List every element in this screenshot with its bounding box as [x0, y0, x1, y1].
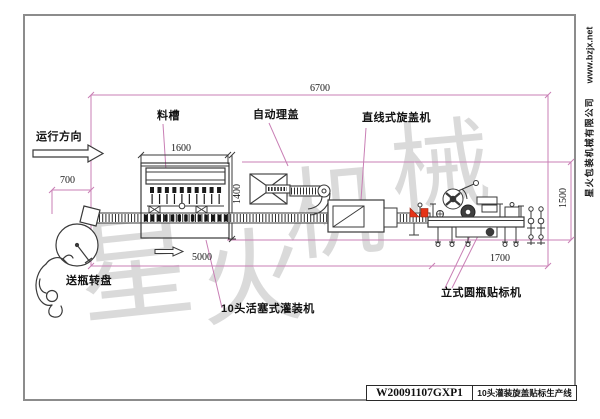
leader-capper [361, 128, 366, 200]
dim-infeed-offset: 700 [60, 176, 75, 186]
label-filler: 10头活塞式灌装机 [221, 304, 315, 315]
cap-track-inner [308, 196, 322, 209]
margin-company-note: 星火包装机械有限公司www.bzjx.net [583, 27, 596, 198]
company-name: 星火包装机械有限公司 [585, 97, 595, 197]
arrows [33, 145, 183, 256]
cap-sorter [250, 174, 330, 215]
company-website: www.bzjx.net [585, 27, 595, 84]
line-drawing [0, 0, 600, 419]
labeling-machine [418, 181, 545, 247]
filling-machine [141, 163, 229, 238]
labeler-table [428, 217, 524, 227]
run-direction-arrow [33, 145, 103, 162]
drawing-number: W20091107GXP1 [367, 386, 473, 400]
title-block: W20091107GXP1 10头灌装旋盖贴标生产线 [366, 385, 577, 401]
operator-head [47, 291, 58, 302]
leader-cap-sorter [269, 123, 288, 166]
dim-trough-width: 1600 [171, 144, 191, 154]
dim-labeling-section: 1700 [490, 254, 510, 264]
label-trough: 料槽 [157, 111, 180, 122]
dim-filling-section: 5000 [192, 253, 212, 263]
material-trough [146, 168, 225, 184]
label-turntable: 送瓶转盘 [66, 276, 112, 287]
turntable [56, 206, 100, 266]
dim-filler-depth: 1400 [233, 184, 243, 204]
label-cap-sorter: 自动理盖 [253, 110, 299, 121]
leader-filler [206, 240, 222, 308]
flow-arrow [155, 247, 183, 256]
run-direction-label: 运行方向 [36, 132, 82, 143]
adjustment-screws [527, 207, 545, 245]
engineering-drawing-page: 星 火 机 械 [0, 0, 600, 419]
drawing-title: 10头灌装旋盖贴标生产线 [473, 386, 576, 400]
label-labeler: 立式圆瓶贴标机 [441, 288, 522, 299]
dim-line-depth: 1500 [559, 188, 569, 208]
dim-total-length: 6700 [310, 84, 330, 94]
label-capper: 直线式旋盖机 [362, 113, 431, 124]
turntable-outfeed-guide [80, 206, 100, 226]
capping-machine [328, 200, 397, 232]
